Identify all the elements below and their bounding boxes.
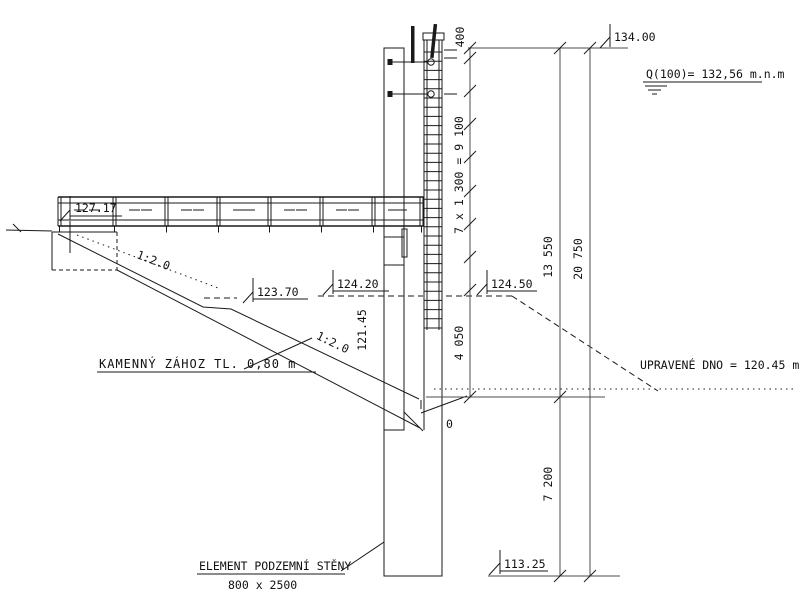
abutment	[52, 232, 117, 270]
toe-zero-label: 0	[446, 417, 453, 431]
dim-400-label: 400	[453, 27, 467, 48]
slope-upper-label: 1:2.0	[135, 248, 172, 274]
wall-assembly	[384, 24, 457, 576]
slope-lower-label: 1:2.0	[314, 329, 351, 357]
dim-9100-label: 7 x 1 300 = 9 100	[452, 116, 466, 234]
elevation-113-25-label: 113.25	[504, 557, 546, 571]
marker-113-25: 113.25	[489, 550, 548, 575]
right-ground-slope-dashed	[512, 296, 658, 391]
elevation-127-label: 127.17	[75, 201, 117, 215]
anchor-nut-upper	[428, 59, 434, 65]
elevation-123-70-label: 123.70	[257, 285, 299, 299]
notes: Q(100)= 132,56 m.n.m UPRAVENÉ DNO = 120.…	[97, 67, 799, 592]
dim-7200-label: 7 200	[541, 467, 555, 502]
marker-134-00: 134.00	[600, 24, 656, 48]
elevation-134-label: 134.00	[614, 30, 656, 44]
q100-note: Q(100)= 132,56 m.n.m	[643, 67, 785, 94]
dim-4050-label: 4 050	[452, 326, 466, 361]
wall-back-panel	[384, 48, 404, 430]
slope-labels: 1:2.0 1:2.0	[135, 248, 352, 357]
elevation-124-20-label: 124.20	[337, 277, 379, 291]
toe-leader	[421, 396, 467, 413]
kamenny-zahoz-note: KAMENNÝ ZÁHOZ TL. 0,80 m	[97, 338, 316, 372]
element-leader-line	[341, 542, 384, 571]
element-note: ELEMENT PODZEMNÍ STĚNY 800 x 2500	[197, 542, 384, 592]
elevation-121-45-label: 121.45	[355, 309, 369, 351]
anchor-plate-lower	[388, 91, 393, 97]
anchor-nut-lower	[428, 91, 434, 97]
level-markers: 134.00 127.17 124.20 124.50 123.70	[60, 24, 656, 575]
underground-wall-element	[384, 430, 442, 576]
dim-13550-label: 13 550	[541, 236, 555, 278]
marker-123-70: 123.70	[243, 278, 308, 303]
marker-124-50: 124.50	[477, 270, 537, 295]
dimension-lines: 400 7 x 1 300 = 9 100 4 050 13 550 20 75…	[426, 27, 628, 582]
marker-124-20: 124.20	[323, 270, 389, 295]
left-terrain	[6, 224, 52, 232]
technical-drawing-canvas: 400 7 x 1 300 = 9 100 4 050 13 550 20 75…	[0, 0, 800, 600]
upravene-dno-label: UPRAVENÉ DNO = 120.45 m	[640, 357, 799, 372]
top-post-right	[430, 24, 437, 58]
dim-20750-label: 20 750	[571, 238, 585, 280]
element-title-label: ELEMENT PODZEMNÍ STĚNY	[199, 558, 351, 573]
q100-label: Q(100)= 132,56 m.n.m	[646, 67, 785, 81]
element-size-label: 800 x 2500	[228, 578, 297, 592]
dim-ticks	[464, 42, 596, 582]
wall-cross-section-drawing: 400 7 x 1 300 = 9 100 4 050 13 550 20 75…	[0, 0, 800, 600]
elevation-124-50-label: 124.50	[491, 277, 533, 291]
top-post-left	[411, 26, 415, 63]
anchor-plate-upper	[388, 59, 393, 65]
